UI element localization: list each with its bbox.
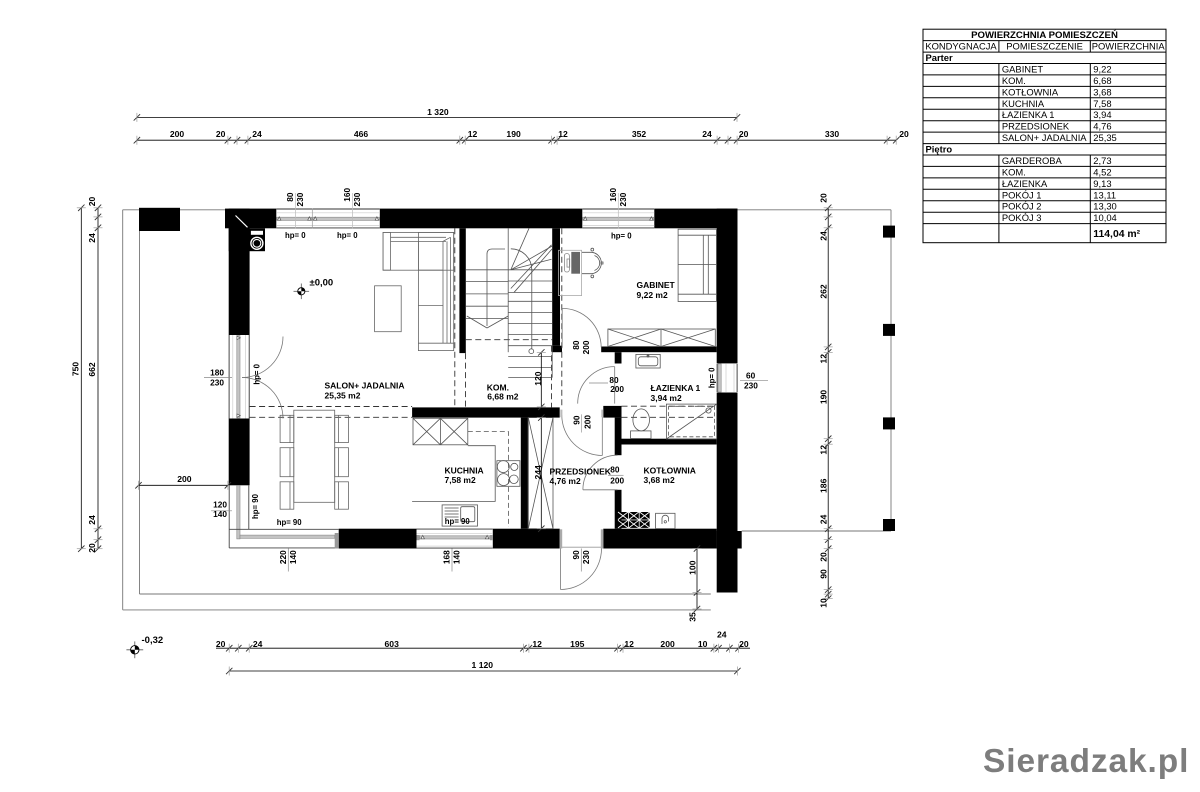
svg-text:230: 230 [618,192,628,206]
svg-text:Parter: Parter [926,52,953,63]
svg-text:200: 200 [582,415,592,429]
svg-text:12: 12 [819,354,829,364]
svg-text:24: 24 [252,129,262,139]
svg-text:120: 120 [533,371,543,386]
svg-text:12: 12 [819,445,829,455]
svg-text:200: 200 [177,474,192,484]
svg-text:220: 220 [278,550,288,564]
svg-text:-0,32: -0,32 [142,635,164,646]
svg-text:140: 140 [288,550,298,564]
svg-text:hp= 0: hp= 0 [337,231,358,240]
svg-text:±0,00: ±0,00 [310,278,334,289]
svg-text:160: 160 [342,187,352,201]
svg-text:4,76: 4,76 [1093,121,1111,132]
svg-text:25,35: 25,35 [1093,132,1116,143]
svg-text:120: 120 [213,500,227,510]
svg-text:2,73: 2,73 [1093,155,1111,166]
svg-text:ŁAZIENKA 1: ŁAZIENKA 1 [651,383,701,393]
svg-text:6,68 m2: 6,68 m2 [487,392,518,402]
svg-text:662: 662 [87,362,97,377]
svg-text:KOTŁOWNIA: KOTŁOWNIA [1002,86,1059,97]
svg-text:603: 603 [385,639,400,649]
svg-text:1 320: 1 320 [427,107,449,117]
svg-text:100: 100 [687,560,697,575]
svg-text:90: 90 [571,415,581,425]
svg-text:195: 195 [570,639,585,649]
svg-text:hp= 0: hp= 0 [285,231,306,240]
svg-text:9,22 m2: 9,22 m2 [637,290,668,300]
svg-text:80: 80 [571,340,581,350]
svg-text:GABINET: GABINET [637,280,676,290]
svg-text:244: 244 [533,465,543,480]
svg-text:KUCHNIA: KUCHNIA [1002,98,1045,109]
svg-text:12: 12 [468,129,478,139]
svg-text:230: 230 [210,378,224,388]
svg-text:186: 186 [819,478,829,493]
svg-text:12: 12 [532,639,542,649]
svg-text:20: 20 [739,129,749,139]
svg-text:12: 12 [624,639,634,649]
svg-text:GABINET: GABINET [1002,64,1043,75]
svg-text:hp= 0: hp= 0 [611,231,632,240]
svg-text:160: 160 [608,187,618,201]
svg-text:20: 20 [87,543,97,553]
svg-text:4,52: 4,52 [1093,166,1111,177]
svg-text:ŁAZIENKA: ŁAZIENKA [1002,178,1048,189]
svg-text:KOTŁOWNIA: KOTŁOWNIA [644,466,696,476]
svg-text:330: 330 [825,129,840,139]
svg-text:80: 80 [610,464,620,474]
svg-text:POKÓJ 3: POKÓJ 3 [1002,212,1042,223]
svg-text:230: 230 [581,550,591,564]
svg-text:hp= 0: hp= 0 [252,363,261,384]
svg-text:35: 35 [688,612,698,622]
svg-text:hp= 90: hp= 90 [445,517,471,526]
svg-text:PRZEDSIONEK: PRZEDSIONEK [1002,121,1070,132]
svg-text:POWIERZCHNIA POMIESZCZEŃ: POWIERZCHNIA POMIESZCZEŃ [971,29,1118,41]
svg-text:12: 12 [558,129,568,139]
svg-text:200: 200 [581,340,591,354]
svg-text:24: 24 [87,515,97,525]
svg-text:466: 466 [354,129,369,139]
svg-text:20: 20 [216,129,226,139]
svg-text:1 120: 1 120 [472,660,494,670]
svg-text:80: 80 [285,192,295,202]
svg-text:POKÓJ 1: POKÓJ 1 [1002,189,1042,200]
svg-text:114,04 m²: 114,04 m² [1093,229,1140,240]
svg-text:20: 20 [739,639,749,649]
svg-text:KONDYGNACJA: KONDYGNACJA [925,41,997,52]
svg-text:7,58: 7,58 [1093,98,1111,109]
svg-text:3,68 m2: 3,68 m2 [644,475,675,485]
svg-text:13,11: 13,11 [1093,189,1116,200]
svg-text:200: 200 [610,476,624,486]
svg-text:230: 230 [295,192,305,206]
svg-text:7,58 m2: 7,58 m2 [445,475,476,485]
svg-text:24: 24 [717,629,727,639]
svg-text:Piętro: Piętro [926,144,953,155]
svg-text:20: 20 [87,197,97,207]
svg-text:10,04: 10,04 [1093,212,1116,223]
svg-text:190: 190 [819,390,829,405]
svg-text:20: 20 [899,129,909,139]
svg-text:90: 90 [819,569,829,579]
svg-text:3,94: 3,94 [1093,109,1111,120]
svg-text:90: 90 [571,550,581,560]
svg-text:KOM.: KOM. [1002,166,1026,177]
svg-text:24: 24 [253,639,263,649]
svg-text:25,35 m2: 25,35 m2 [325,390,361,400]
svg-text:10: 10 [698,639,708,649]
svg-text:262: 262 [819,284,829,299]
svg-text:10: 10 [819,598,829,608]
svg-text:9,22: 9,22 [1093,64,1111,75]
svg-text:200: 200 [170,129,185,139]
svg-text:hp= 90: hp= 90 [277,518,303,527]
svg-text:SALON+ JADALNIA: SALON+ JADALNIA [325,381,405,391]
svg-text:140: 140 [213,509,227,519]
svg-text:13,30: 13,30 [1093,201,1116,212]
svg-text:KOM.: KOM. [1002,75,1026,86]
svg-text:140: 140 [452,550,462,564]
svg-text:200: 200 [610,384,624,394]
svg-text:200: 200 [660,639,675,649]
svg-text:POMIESZCZENIE: POMIESZCZENIE [1006,41,1083,52]
svg-text:20: 20 [819,552,829,562]
svg-text:POKÓJ 2: POKÓJ 2 [1002,201,1042,212]
svg-text:SALON+ JADALNIA: SALON+ JADALNIA [1002,132,1087,143]
svg-text:KUCHNIA: KUCHNIA [445,466,484,476]
svg-text:230: 230 [744,381,758,391]
svg-text:190: 190 [506,129,521,139]
svg-text:6,68: 6,68 [1093,75,1111,86]
svg-text:Sieradzak.pl: Sieradzak.pl [983,743,1189,780]
svg-text:ŁAZIENKA 1: ŁAZIENKA 1 [1002,109,1055,120]
svg-text:9,13: 9,13 [1093,178,1111,189]
svg-text:24: 24 [87,233,97,243]
svg-text:60: 60 [746,371,756,381]
svg-text:20: 20 [819,193,829,203]
svg-text:PRZEDSIONEK: PRZEDSIONEK [550,467,612,477]
svg-text:168: 168 [442,550,452,564]
svg-text:750: 750 [70,362,80,377]
svg-text:GARDEROBA: GARDEROBA [1002,155,1063,166]
svg-text:4,76 m2: 4,76 m2 [550,476,581,486]
svg-text:24: 24 [819,231,829,241]
svg-text:230: 230 [352,192,362,206]
svg-text:24: 24 [702,129,712,139]
svg-text:POWIERZCHNIA: POWIERZCHNIA [1092,41,1166,52]
svg-text:hp= 0: hp= 0 [707,367,716,388]
svg-text:352: 352 [632,129,647,139]
svg-text:180: 180 [210,368,224,378]
svg-text:3,68: 3,68 [1093,86,1111,97]
svg-text:24: 24 [819,515,829,525]
svg-text:hp= 90: hp= 90 [251,493,260,519]
svg-text:3,94 m2: 3,94 m2 [651,393,682,403]
svg-text:20: 20 [216,639,226,649]
